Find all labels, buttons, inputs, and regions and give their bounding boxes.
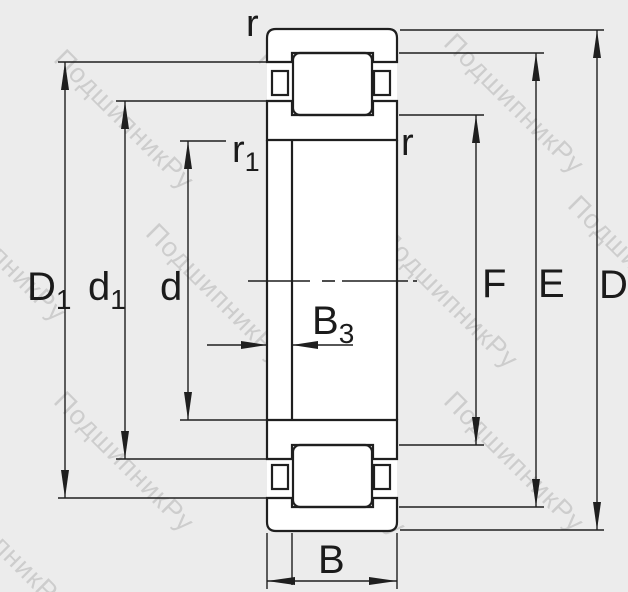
arrowhead-right <box>369 577 397 585</box>
label-E: E <box>538 262 565 306</box>
bearing-silhouette <box>267 29 397 531</box>
label-r1: r1 <box>232 129 260 177</box>
bearing-cross-section-svg: ПодшипникРу ПодшипникРу ПодшипникРу Подш… <box>0 0 628 592</box>
label-r-top: r <box>246 3 259 45</box>
arrowhead-down <box>184 392 192 420</box>
label-r-right: r <box>401 122 414 164</box>
arrowhead-down <box>593 502 601 530</box>
arrowhead-up <box>184 141 192 169</box>
label-d1: d1 <box>88 265 126 315</box>
label-D: D <box>599 263 628 307</box>
arrowhead-up <box>472 115 480 143</box>
bearing-drawing: ПодшипникРу ПодшипникРу ПодшипникРу Подш… <box>0 0 628 592</box>
watermark-text: ПодшипникРу <box>438 28 590 180</box>
arrowhead-up <box>532 53 540 81</box>
watermark-text: ПодшипникРу <box>438 386 590 538</box>
arrowhead-up <box>593 30 601 58</box>
arrowhead-down <box>61 470 69 498</box>
label-d: d <box>160 265 182 309</box>
arrowhead-left <box>267 577 295 585</box>
label-F: F <box>482 262 506 306</box>
label-B: B <box>318 538 345 582</box>
